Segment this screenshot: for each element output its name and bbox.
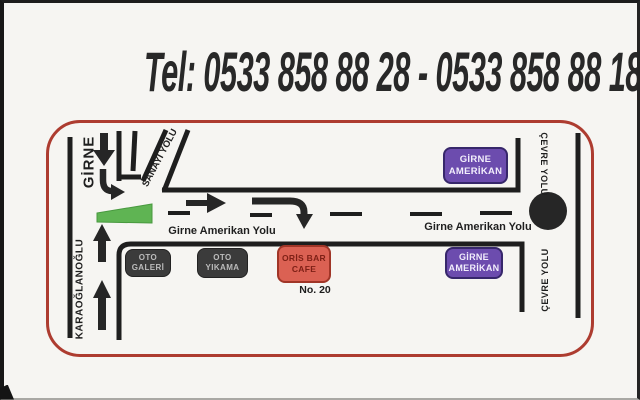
scanned-business-card: Tel: 0533 858 88 28 - 0533 858 88 18 [0, 0, 640, 400]
road-label-cevre-yolu-top: ÇEVRE YOLU [539, 132, 549, 195]
place-girne-amerikan-top: GİRNE AMERİKAN [443, 147, 508, 184]
road-label-karaoglanoglu: KARAOĞLANOĞLU [75, 239, 86, 339]
place-girne-amerikan-bottom: GİRNE AMERİKAN [445, 247, 503, 279]
road-label-cevre-yolu-bottom: ÇEVRE YOLU [540, 248, 550, 311]
place-label: ORİS BAR [282, 253, 326, 264]
place-label: OTO [213, 253, 231, 263]
road-label-girne-amerikan-yolu-right: Girne Amerikan Yolu [424, 221, 531, 233]
place-label: GİRNE [459, 252, 489, 263]
address-number: No. 20 [285, 284, 345, 296]
road-label-girne: GİRNE [81, 136, 98, 189]
place-label: CAFE [292, 264, 316, 275]
place-label: AMERİKAN [449, 263, 500, 274]
place-label: GİRNE [460, 154, 492, 166]
scan-corner-mark [0, 385, 14, 400]
place-label: GALERİ [132, 263, 165, 273]
place-label: AMERİKAN [449, 166, 503, 178]
place-label: OTO [139, 253, 157, 263]
place-oris-bar-cafe: ORİS BAR CAFE [277, 245, 331, 283]
phone-numbers: Tel: 0533 858 88 28 - 0533 858 88 18 [144, 41, 496, 103]
place-oto-galeri: OTO GALERİ [125, 249, 171, 277]
place-label: YIKAMA [206, 263, 240, 273]
road-label-girne-amerikan-yolu-left: Girne Amerikan Yolu [168, 225, 275, 237]
place-oto-yikama: OTO YIKAMA [197, 248, 248, 278]
map-panel-border [46, 120, 594, 357]
